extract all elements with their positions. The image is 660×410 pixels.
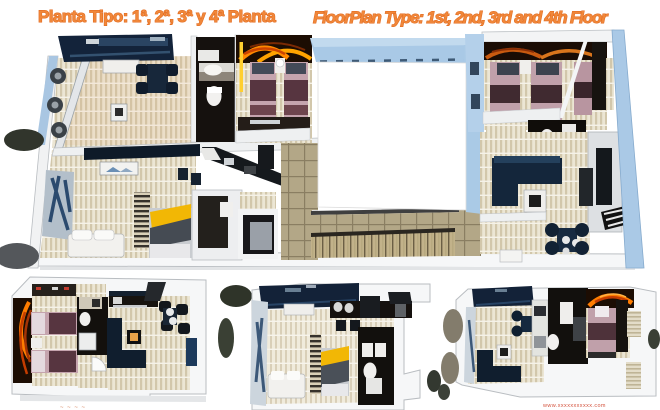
- svg-text:FloorPlan Type: 1st, 2nd, 3rd: FloorPlan Type: 1st, 2nd, 3rd and 4th Fl…: [313, 8, 609, 27]
- svg-text:Planta Tipo: 1ª, 2ª, 3ª y 4ª P: Planta Tipo: 1ª, 2ª, 3ª y 4ª Planta: [38, 7, 276, 26]
- svg-text:www.xxxxxxxxxxx.com: www.xxxxxxxxxxx.com: [542, 403, 606, 409]
- svg-text:~ ~ ~ ~: ~ ~ ~ ~: [60, 405, 86, 410]
